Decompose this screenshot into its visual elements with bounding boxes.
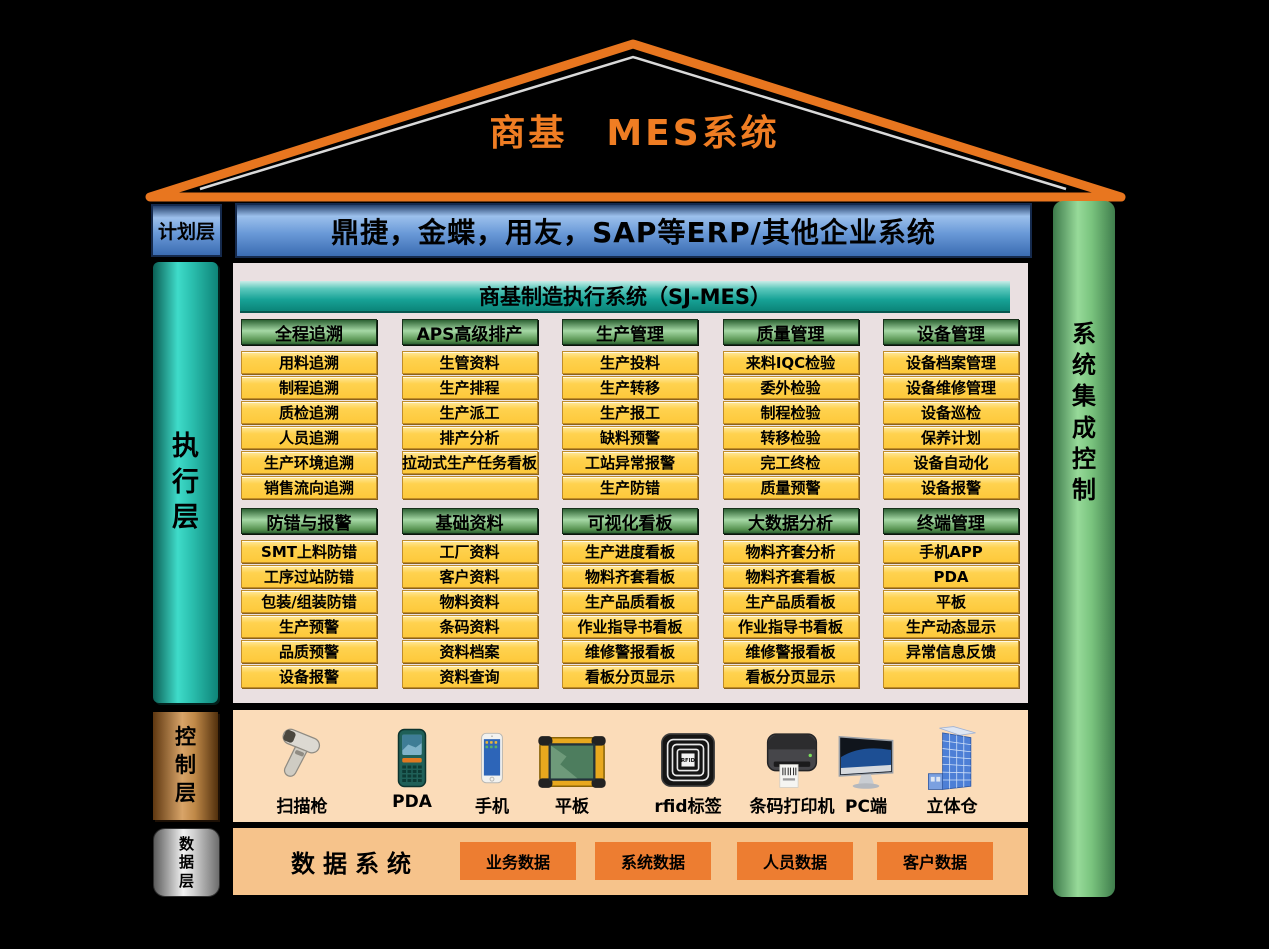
module-item: 保养计划 [883, 426, 1019, 449]
module-grid-row1: 全程追溯用料追溯制程追溯质检追溯人员追溯生产环境追溯销售流向追溯APS高级排产生… [241, 319, 1019, 499]
control-panel: 扫描枪PDA手机平板RFIDrfid标签条码打印机PC端立体仓 [233, 710, 1028, 822]
scanner-gun-icon [269, 720, 335, 792]
module-item [402, 476, 538, 499]
sjmes-banner: 商基制造执行系统（SJ-MES） [240, 281, 1010, 313]
module-item: 条码资料 [402, 615, 538, 638]
device-slot: 平板 [524, 710, 620, 818]
module-item: 生产进度看板 [562, 540, 698, 563]
module-item: 手机APP [883, 540, 1019, 563]
module-header: 防错与报警 [241, 508, 377, 534]
diagram-title: 商基 MES系统 [0, 104, 1269, 156]
module-item: 资料查询 [402, 665, 538, 688]
svg-text:RFID: RFID [681, 758, 696, 764]
module-item: 维修警报看板 [723, 640, 859, 663]
device-label: 扫描枪 [277, 792, 328, 818]
module-item: 异常信息反馈 [883, 640, 1019, 663]
module-header: 设备管理 [883, 319, 1019, 345]
module-item: 作业指导书看板 [723, 615, 859, 638]
module-column: 防错与报警SMT上料防错工序过站防错包装/组装防错生产预警品质预警设备报警 [241, 508, 377, 688]
module-item: 物料齐套看板 [723, 565, 859, 588]
module-column: APS高级排产生管资料生产排程生产派工排产分析拉动式生产任务看板 [402, 319, 538, 499]
module-column: 质量管理来料IQC检验委外检验制程检验转移检验完工终检质量预警 [723, 319, 859, 499]
module-item: 平板 [883, 590, 1019, 613]
module-item: 看板分页显示 [562, 665, 698, 688]
module-header: 生产管理 [562, 319, 698, 345]
module-item: 维修警报看板 [562, 640, 698, 663]
module-header: 质量管理 [723, 319, 859, 345]
data-box: 人员数据 [737, 842, 853, 880]
pc-monitor-icon [830, 720, 902, 792]
device-label: 立体仓 [927, 792, 978, 818]
module-item: 人员追溯 [241, 426, 377, 449]
module-item: 客户资料 [402, 565, 538, 588]
module-column: 终端管理手机APPPDA平板生产动态显示异常信息反馈 [883, 508, 1019, 688]
module-item: 质检追溯 [241, 401, 377, 424]
module-item: 拉动式生产任务看板 [402, 451, 538, 474]
module-item: 生产派工 [402, 401, 538, 424]
module-item: 生产品质看板 [562, 590, 698, 613]
module-item: 设备自动化 [883, 451, 1019, 474]
device-label: 手机 [475, 792, 509, 818]
execution-panel: 商基制造执行系统（SJ-MES） 全程追溯用料追溯制程追溯质检追溯人员追溯生产环… [233, 263, 1028, 703]
module-item: 工序过站防错 [241, 565, 377, 588]
module-item [883, 665, 1019, 688]
module-grid-row2: 防错与报警SMT上料防错工序过站防错包装/组装防错生产预警品质预警设备报警基础资… [241, 508, 1019, 688]
module-column: 基础资料工厂资料客户资料物料资料条码资料资料档案资料查询 [402, 508, 538, 688]
tablet-icon [536, 720, 608, 792]
module-item: 缺料预警 [562, 426, 698, 449]
pda-icon [382, 720, 442, 792]
integration-pillar-text: 系统集成控制 [1071, 319, 1097, 506]
device-slot: RFIDrfid标签 [640, 710, 736, 818]
rfid-tag-icon: RFID [657, 720, 719, 792]
module-item: 生产报工 [562, 401, 698, 424]
device-label: rfid标签 [654, 792, 721, 818]
module-header: 全程追溯 [241, 319, 377, 345]
erp-systems-bar: 鼎捷，金蝶，用友，SAP等ERP/其他企业系统 [235, 203, 1032, 258]
control-layer-label-text: 控制层 [174, 724, 197, 807]
module-item: 生产品质看板 [723, 590, 859, 613]
module-item: SMT上料防错 [241, 540, 377, 563]
module-header: 大数据分析 [723, 508, 859, 534]
data-panel: 数据系统 业务数据系统数据人员数据客户数据 [233, 828, 1028, 895]
smartphone-icon [466, 720, 518, 792]
module-item: 设备报警 [883, 476, 1019, 499]
integration-pillar: 系统集成控制 [1053, 201, 1115, 897]
mes-architecture-diagram: 商基 MES系统 计划层 鼎捷，金蝶，用友，SAP等ERP/其他企业系统 执行层… [0, 0, 1269, 949]
module-item: 设备报警 [241, 665, 377, 688]
module-item: 生产动态显示 [883, 615, 1019, 638]
module-item: 设备档案管理 [883, 351, 1019, 374]
module-column: 全程追溯用料追溯制程追溯质检追溯人员追溯生产环境追溯销售流向追溯 [241, 319, 377, 499]
module-item: PDA [883, 565, 1019, 588]
module-header: 终端管理 [883, 508, 1019, 534]
module-item: 来料IQC检验 [723, 351, 859, 374]
module-item: 制程检验 [723, 401, 859, 424]
device-label: PC端 [845, 792, 887, 818]
module-item: 看板分页显示 [723, 665, 859, 688]
module-item: 物料齐套分析 [723, 540, 859, 563]
module-column: 可视化看板生产进度看板物料齐套看板生产品质看板作业指导书看板维修警报看板看板分页… [562, 508, 698, 688]
module-item: 委外检验 [723, 376, 859, 399]
module-item: 销售流向追溯 [241, 476, 377, 499]
module-item: 生管资料 [402, 351, 538, 374]
module-header: 可视化看板 [562, 508, 698, 534]
control-layer-label: 控制层 [153, 712, 218, 820]
module-column: 生产管理生产投料生产转移生产报工缺料预警工站异常报警生产防错 [562, 319, 698, 499]
execution-layer-label-text: 执行层 [171, 429, 200, 536]
module-column: 大数据分析物料齐套分析物料齐套看板生产品质看板作业指导书看板维修警报看板看板分页… [723, 508, 859, 688]
data-box: 客户数据 [877, 842, 993, 880]
module-item: 设备巡检 [883, 401, 1019, 424]
execution-layer-label: 执行层 [153, 262, 218, 703]
module-column: 设备管理设备档案管理设备维修管理设备巡检保养计划设备自动化设备报警 [883, 319, 1019, 499]
module-item: 质量预警 [723, 476, 859, 499]
module-item: 生产防错 [562, 476, 698, 499]
module-item: 生产排程 [402, 376, 538, 399]
module-item: 生产环境追溯 [241, 451, 377, 474]
planning-layer-label: 计划层 [151, 204, 222, 257]
data-layer-label-text: 数据层 [178, 835, 194, 890]
module-item: 物料齐套看板 [562, 565, 698, 588]
module-item: 品质预警 [241, 640, 377, 663]
module-item: 用料追溯 [241, 351, 377, 374]
module-item: 生产预警 [241, 615, 377, 638]
module-header: 基础资料 [402, 508, 538, 534]
module-item: 生产转移 [562, 376, 698, 399]
data-box: 业务数据 [460, 842, 576, 880]
module-item: 生产投料 [562, 351, 698, 374]
module-item: 排产分析 [402, 426, 538, 449]
device-slot: 扫描枪 [254, 710, 350, 818]
warehouse-icon [919, 720, 985, 792]
module-header: APS高级排产 [402, 319, 538, 345]
module-item: 转移检验 [723, 426, 859, 449]
device-slot: 立体仓 [904, 710, 1000, 818]
module-item: 工厂资料 [402, 540, 538, 563]
module-item: 资料档案 [402, 640, 538, 663]
barcode-printer-icon [757, 720, 827, 792]
data-box: 系统数据 [595, 842, 711, 880]
module-item: 物料资料 [402, 590, 538, 613]
data-system-title: 数据系统 [291, 828, 419, 895]
data-layer-label: 数据层 [153, 828, 220, 897]
device-label: PDA [392, 792, 432, 818]
module-item: 设备维修管理 [883, 376, 1019, 399]
device-label: 平板 [555, 792, 589, 818]
module-item: 包装/组装防错 [241, 590, 377, 613]
device-slot: PC端 [818, 710, 914, 818]
module-item: 作业指导书看板 [562, 615, 698, 638]
module-item: 完工终检 [723, 451, 859, 474]
module-item: 工站异常报警 [562, 451, 698, 474]
module-item: 制程追溯 [241, 376, 377, 399]
